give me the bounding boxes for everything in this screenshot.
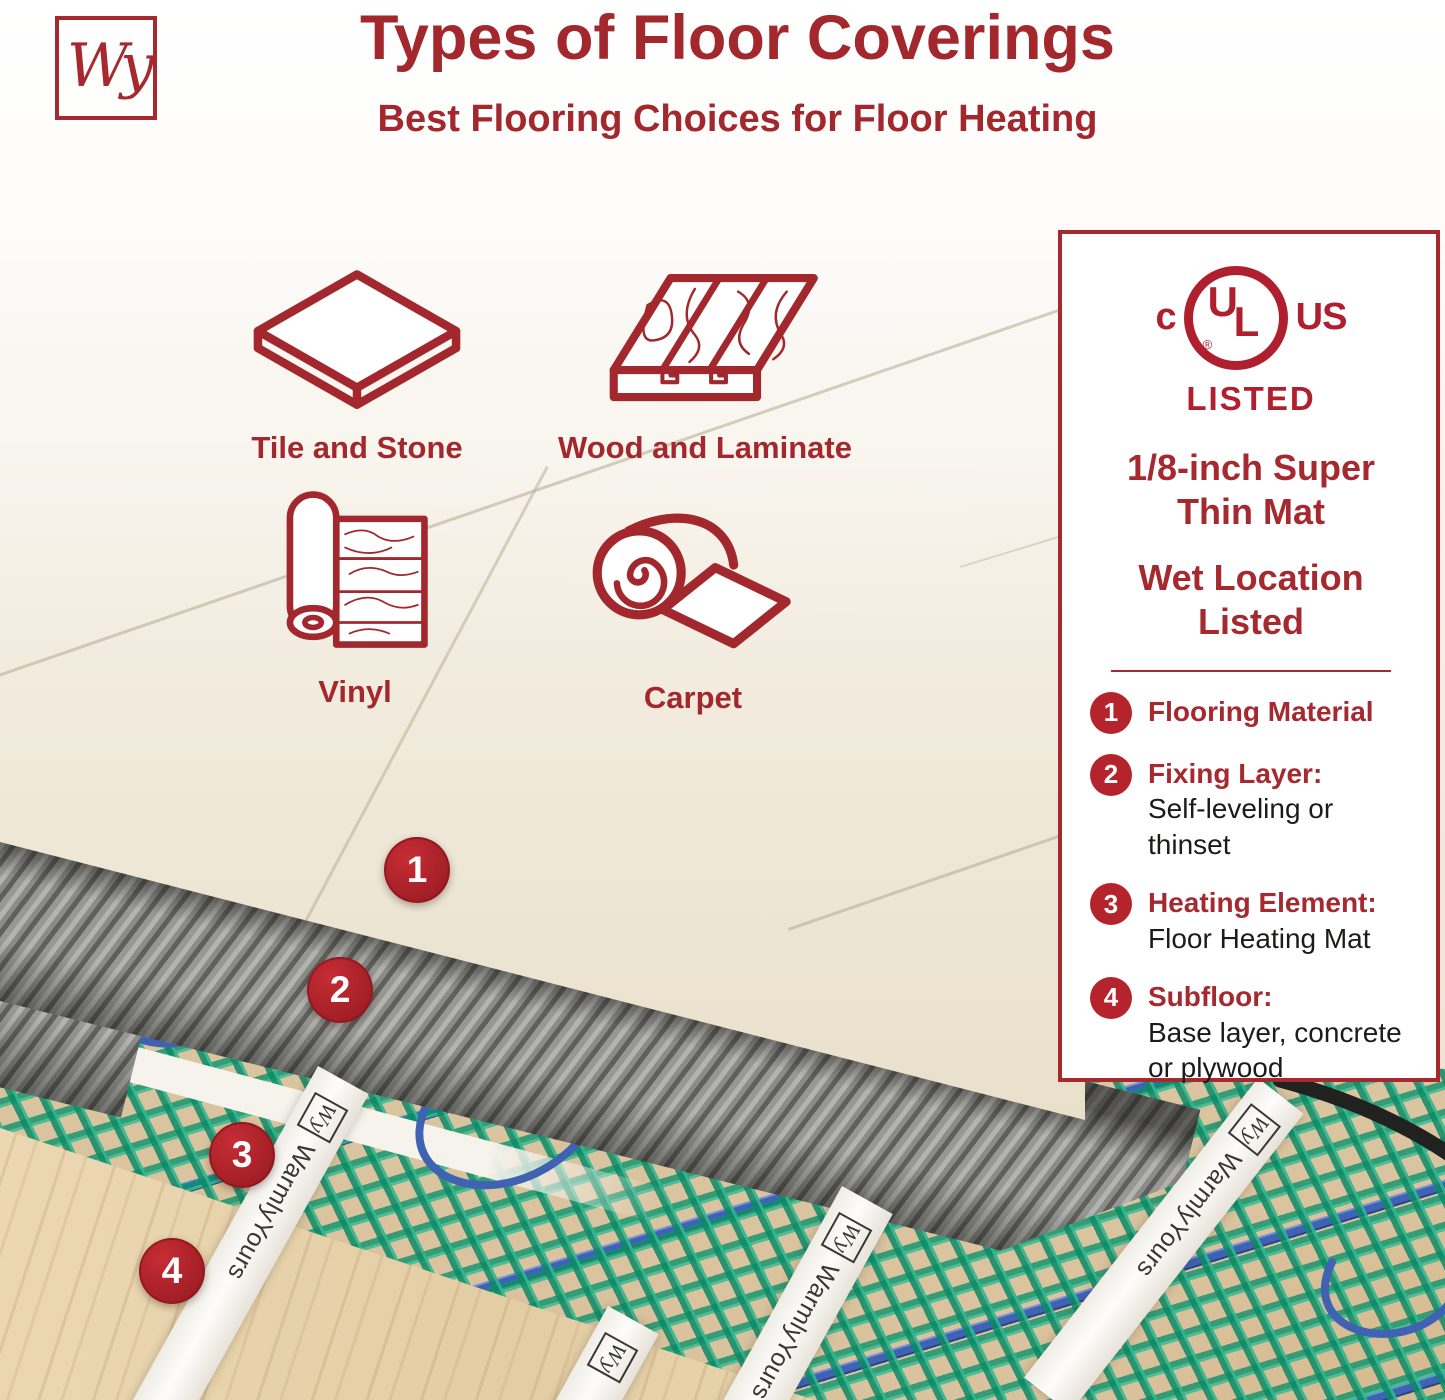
- page-subtitle: Best Flooring Choices for Floor Heating: [0, 98, 1445, 141]
- panel-headline-primary: 1/8-inch Super Thin Mat: [1090, 446, 1412, 534]
- layer-description: Floor Heating Mat: [1148, 921, 1377, 957]
- ul-circle-icon: U L ®: [1184, 266, 1288, 370]
- flooring-type-vinyl: Vinyl: [200, 488, 510, 710]
- wood-laminate-icon: [586, 270, 824, 416]
- flooring-type-label: Carpet: [644, 680, 742, 716]
- layer-description: Base layer, concrete or plywood: [1148, 1015, 1402, 1087]
- tape-monogram-logo: Wy: [587, 1332, 639, 1384]
- carpet-icon: [581, 502, 805, 666]
- layer-marker-3: 3: [209, 1122, 275, 1188]
- layer-description: Self-leveling or thinset: [1148, 791, 1333, 863]
- flooring-type-label: Tile and Stone: [251, 430, 462, 466]
- flooring-type-carpet: Carpet: [538, 502, 848, 716]
- info-panel: c U L ® US LISTED 1/8-inch Super Thin Ma…: [1058, 230, 1440, 1082]
- layer-legend-list: 1 Flooring Material 2 Fixing Layer: Self…: [1090, 694, 1412, 1087]
- ul-listed-label: LISTED: [1090, 380, 1412, 418]
- tape-monogram-logo: Wy: [297, 1092, 349, 1144]
- registered-symbol: ®: [1203, 337, 1213, 352]
- tape-monogram-logo: Wy: [821, 1212, 873, 1264]
- layer-number-badge: 1: [1090, 692, 1132, 734]
- page-title: Types of Floor Coverings: [0, 2, 1445, 74]
- layer-number-badge: 4: [1090, 977, 1132, 1019]
- layer-number-badge: 2: [1090, 754, 1132, 796]
- ul-certification-mark: c U L ® US: [1090, 266, 1412, 370]
- flooring-type-wood-and-laminate: Wood and Laminate: [550, 270, 860, 466]
- panel-divider: [1111, 670, 1391, 672]
- flooring-type-tile-and-stone: Tile and Stone: [202, 266, 512, 466]
- vinyl-icon: [272, 488, 438, 660]
- layer-marker-2: 2: [307, 957, 373, 1023]
- layer-marker-4: 4: [139, 1238, 205, 1304]
- layer-marker-1: 1: [384, 837, 450, 903]
- infographic-scene: Wy WarmlyYours Wy Wy WarmlyYours Wy Warm…: [0, 0, 1445, 1400]
- layer-legend-item: 3 Heating Element: Floor Heating Mat: [1090, 885, 1412, 957]
- ul-mark-c: c: [1156, 296, 1176, 339]
- ul-mark-us: US: [1296, 296, 1347, 339]
- tape-monogram-logo: Wy: [1228, 1103, 1281, 1156]
- tile-icon: [243, 266, 471, 416]
- layer-title: Fixing Layer:: [1148, 756, 1333, 792]
- layer-title: Flooring Material: [1148, 694, 1374, 730]
- layer-legend-item: 2 Fixing Layer: Self-leveling or thinset: [1090, 756, 1412, 863]
- layer-title: Heating Element:: [1148, 885, 1377, 921]
- layer-title: Subfloor:: [1148, 979, 1402, 1015]
- layer-legend-item: 1 Flooring Material: [1090, 694, 1412, 734]
- layer-legend-item: 4 Subfloor: Base layer, concrete or plyw…: [1090, 979, 1412, 1086]
- layer-number-badge: 3: [1090, 883, 1132, 925]
- panel-headline-secondary: Wet Location Listed: [1090, 556, 1412, 644]
- flooring-type-label: Wood and Laminate: [558, 430, 852, 466]
- flooring-type-label: Vinyl: [318, 674, 392, 710]
